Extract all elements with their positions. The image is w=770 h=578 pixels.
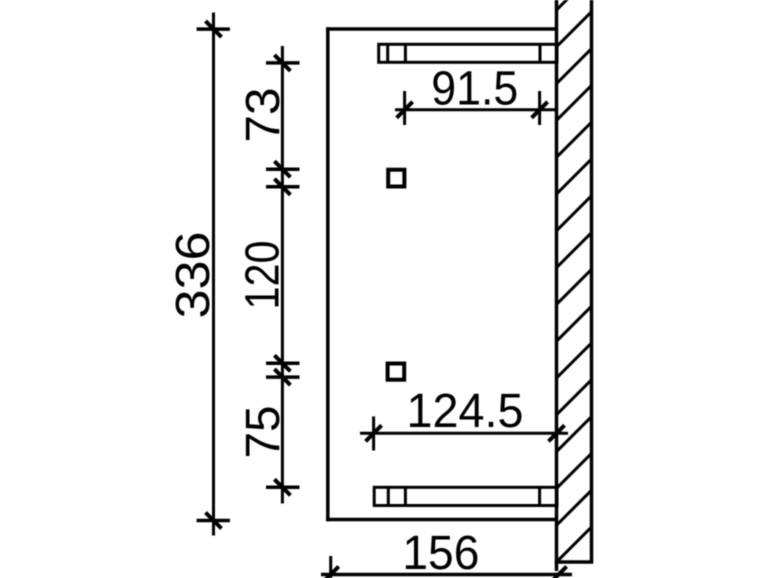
svg-text:124.5: 124.5 — [407, 385, 524, 438]
svg-text:91.5: 91.5 — [431, 63, 518, 116]
svg-text:75: 75 — [237, 406, 290, 459]
svg-text:336: 336 — [167, 232, 220, 319]
svg-text:120: 120 — [237, 241, 290, 310]
svg-text:156: 156 — [402, 527, 479, 578]
svg-text:73: 73 — [237, 88, 290, 143]
